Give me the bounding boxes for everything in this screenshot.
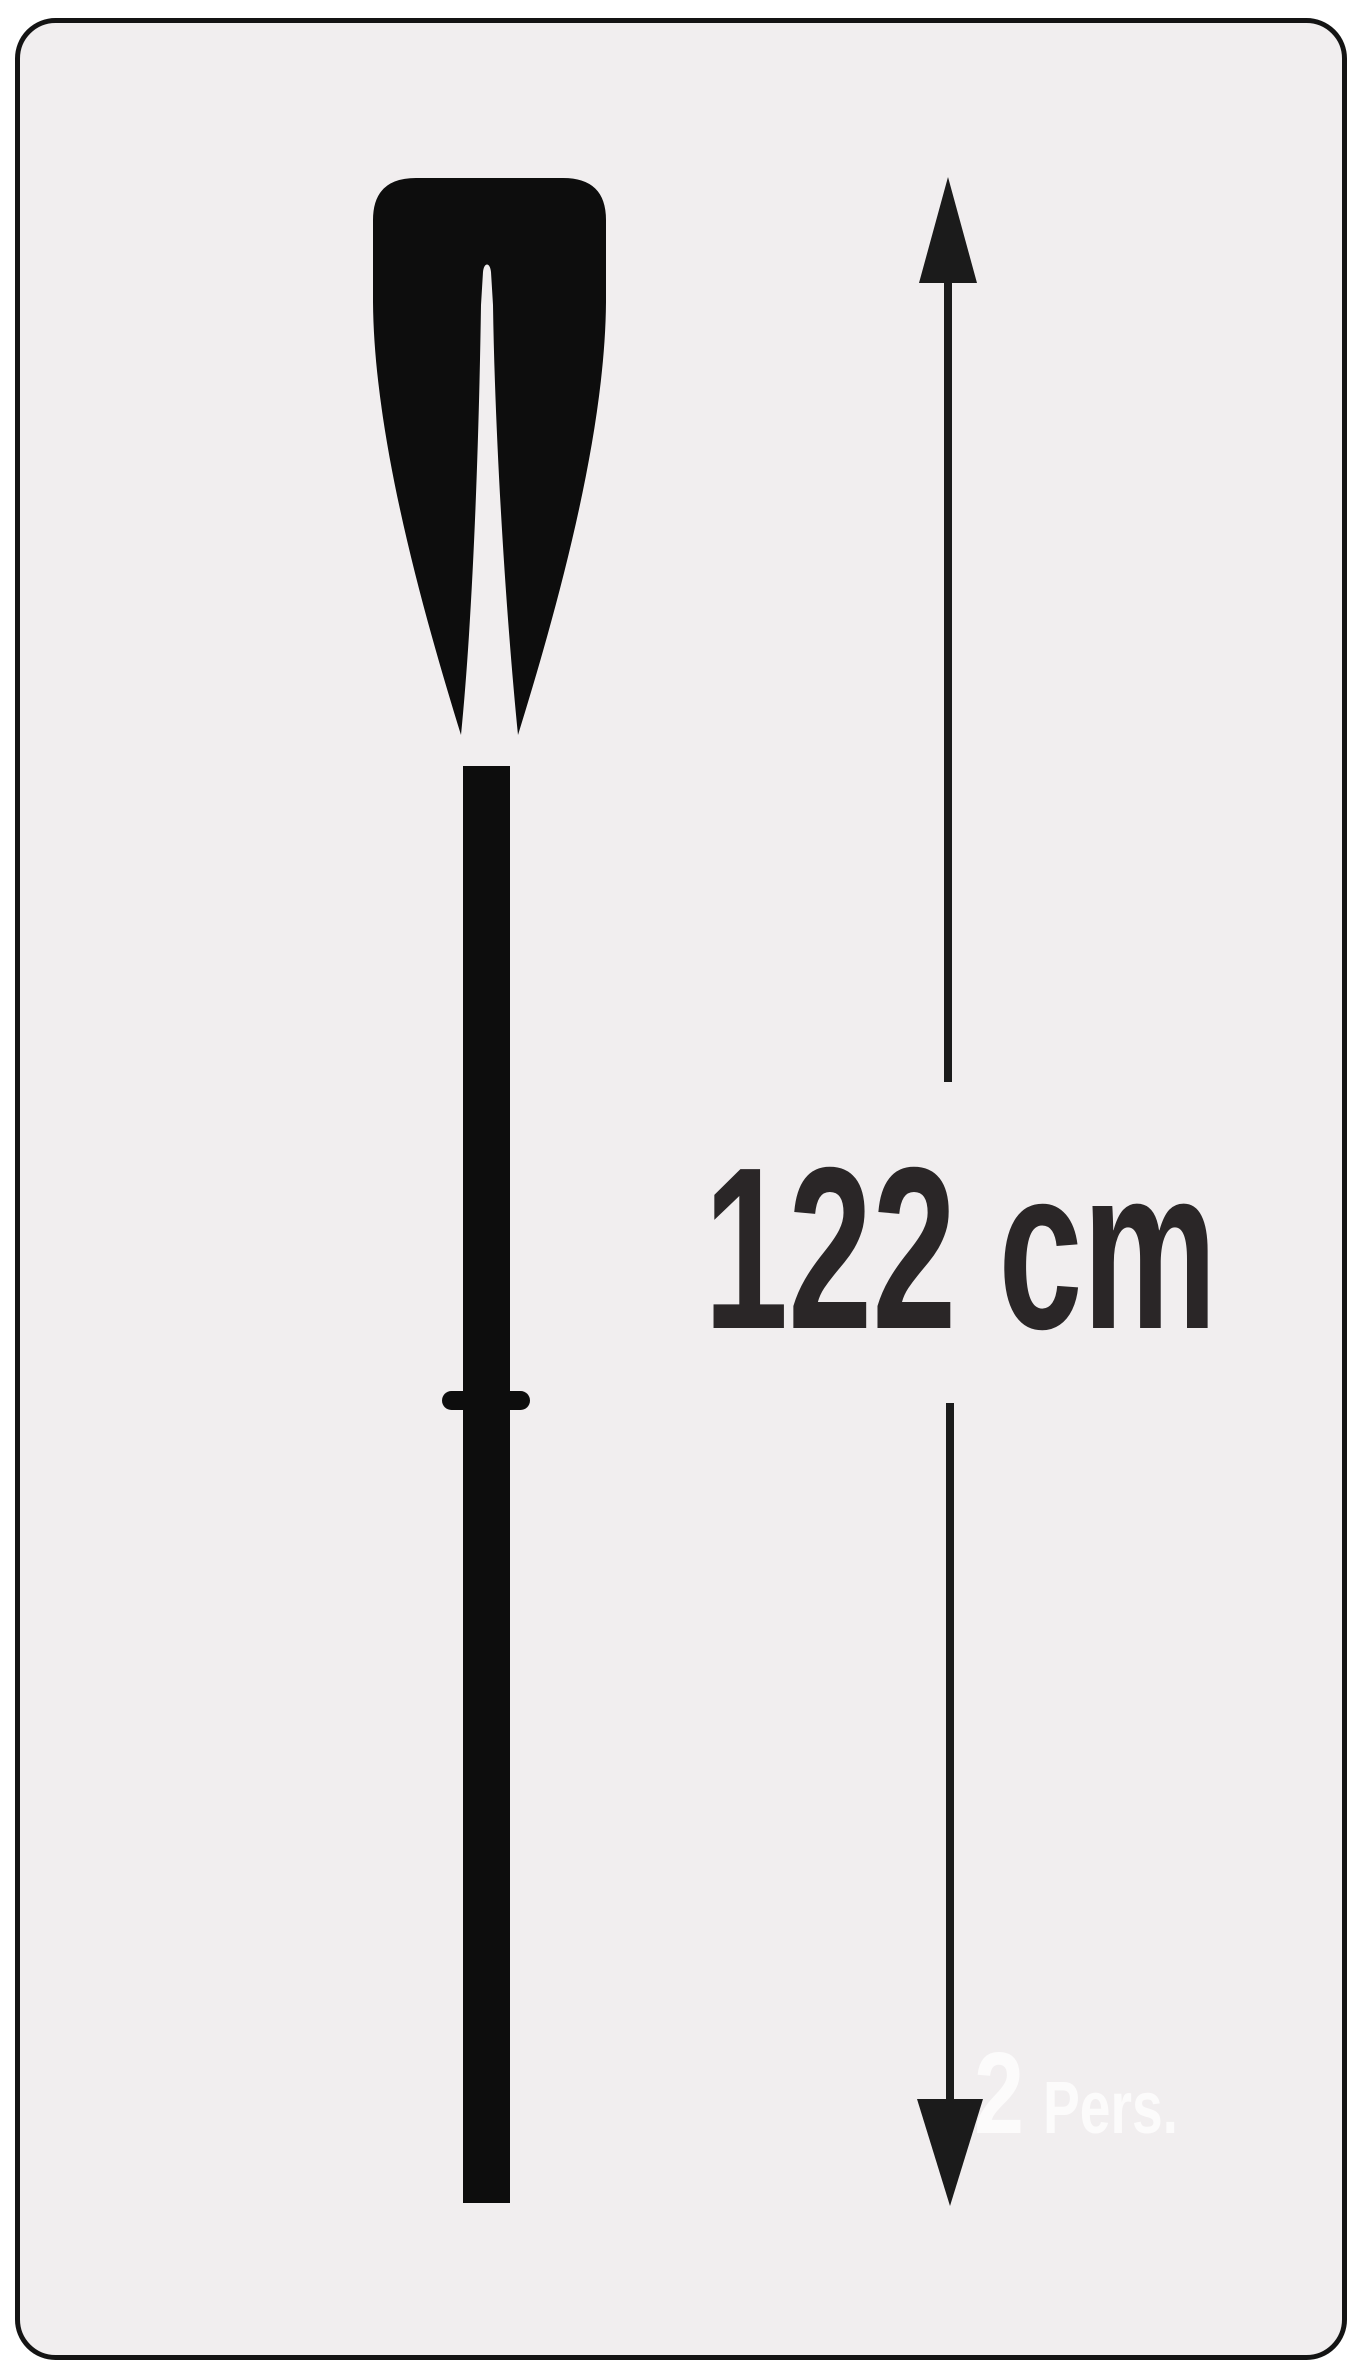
product-image: 122 cm 2 Pers.: [0, 0, 1358, 2378]
paddle-shaft: [463, 766, 510, 2203]
paddle-crossbar: [442, 1391, 530, 1410]
diagram-canvas: 122 cm 2 Pers.: [0, 0, 1358, 2378]
measurement-label: 122 cm: [704, 1119, 1217, 1377]
capacity-label: Pers.: [1043, 2066, 1178, 2149]
capacity-count: 2: [974, 2028, 1024, 2158]
